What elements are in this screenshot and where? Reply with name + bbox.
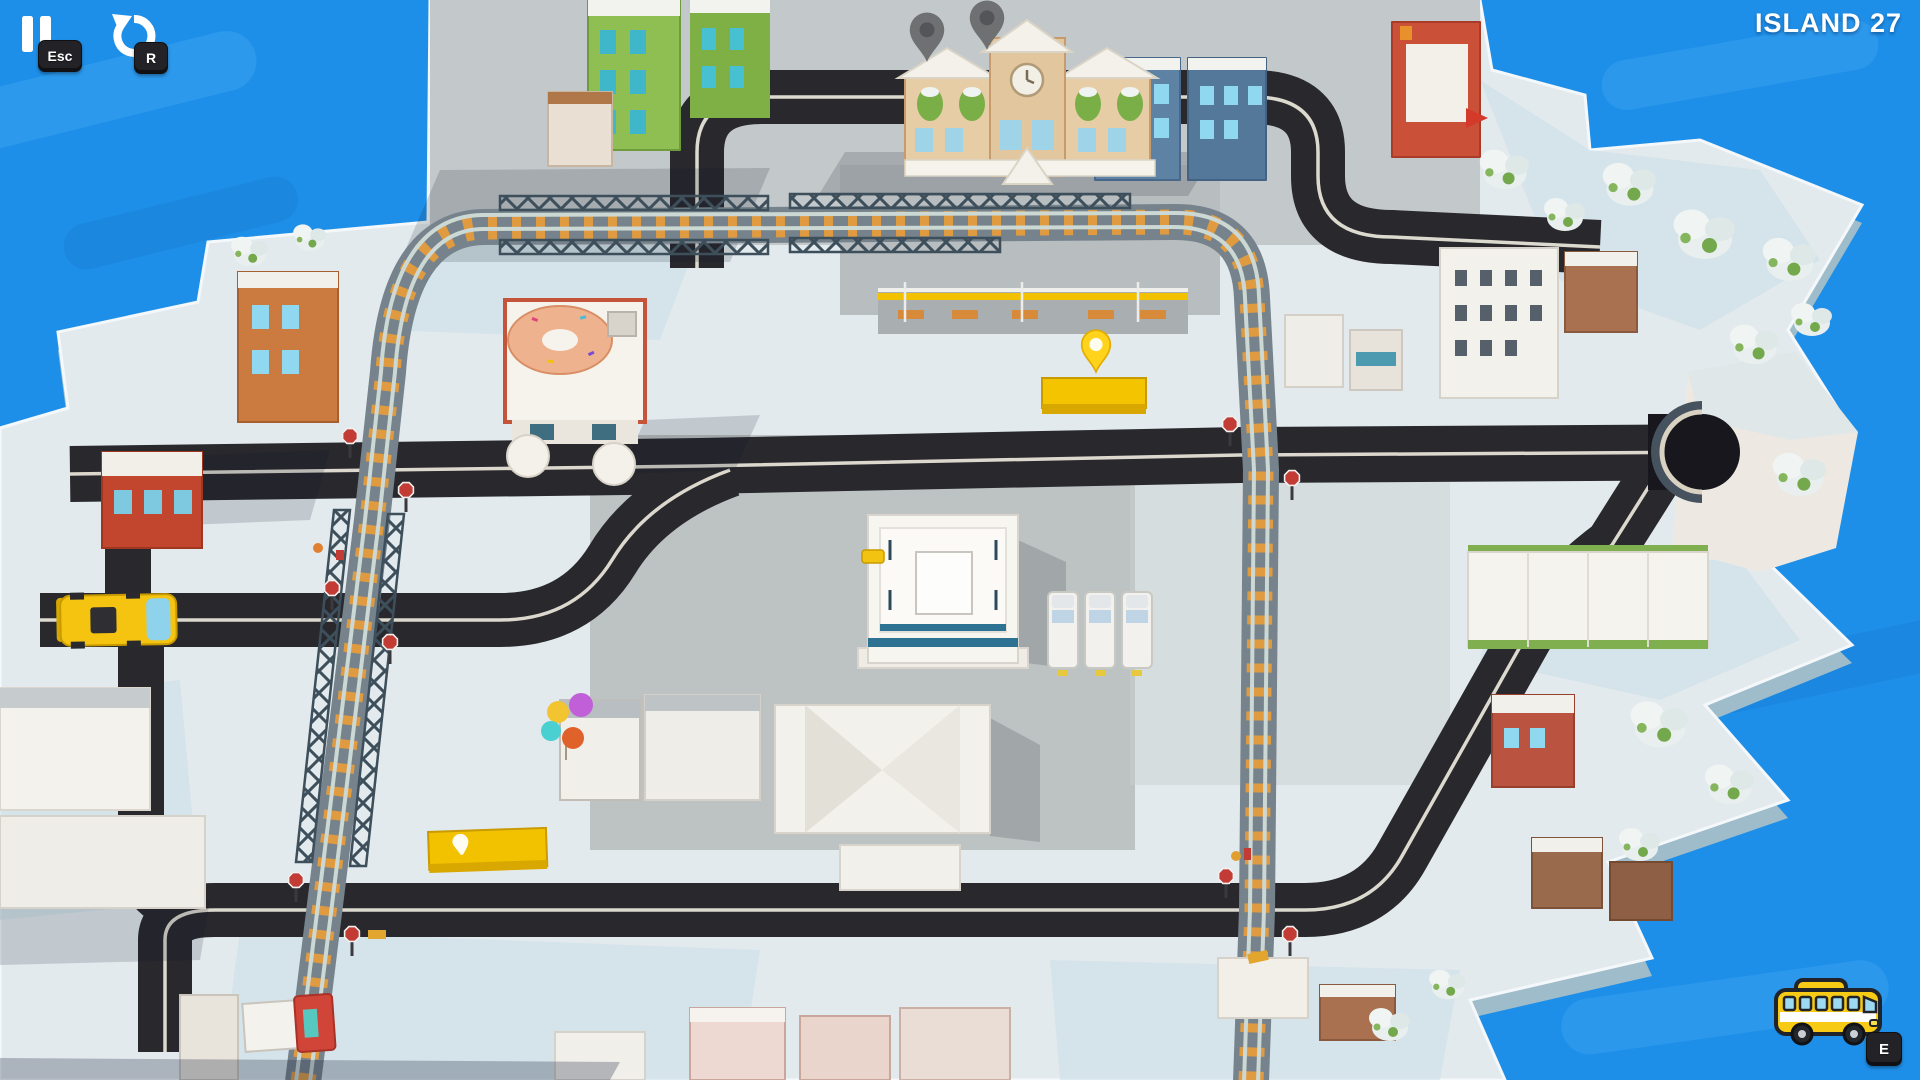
pause-button[interactable]: Esc [16,12,80,76]
game-screen: Esc R Island 27 E [0,0,1920,1080]
red-truck[interactable] [242,994,336,1056]
parked-trucks [1048,592,1152,676]
level-title: Island 27 [1755,8,1902,39]
station-platform [878,282,1188,334]
restart-button[interactable]: R [106,12,170,76]
cafe-umbrella [593,443,635,485]
bus-stop-shelter[interactable] [428,828,547,873]
esc-keycap: Esc [38,40,82,72]
r-keycap: R [134,42,168,74]
small-car[interactable] [862,550,884,563]
cafe-umbrella [507,435,549,477]
game-world [0,0,1920,1080]
bus-action-button[interactable]: E [1770,970,1898,1062]
bus-vehicle[interactable] [56,591,177,649]
e-keycap: E [1866,1032,1902,1066]
mall-building [858,515,1028,668]
